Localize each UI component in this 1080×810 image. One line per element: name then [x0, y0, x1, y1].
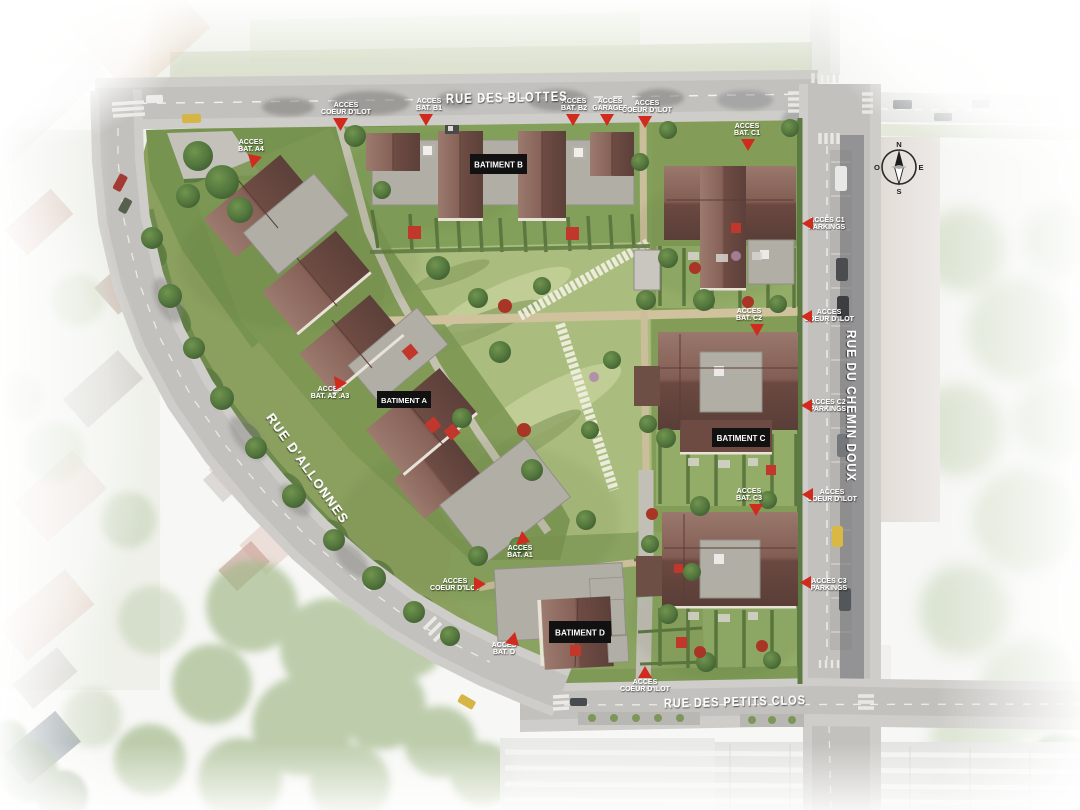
- svg-text:ACCES: ACCES: [817, 309, 842, 316]
- svg-text:ACCES: ACCES: [633, 679, 658, 686]
- svg-text:ACCES: ACCES: [239, 139, 264, 146]
- svg-text:BAT. A2 .A3: BAT. A2 .A3: [311, 393, 350, 400]
- svg-text:PARKINGS: PARKINGS: [811, 585, 848, 592]
- svg-text:O: O: [874, 163, 880, 172]
- svg-text:BATIMENT A: BATIMENT A: [381, 396, 427, 405]
- svg-text:ACCES: ACCES: [508, 545, 533, 552]
- svg-text:BATIMENT D: BATIMENT D: [555, 629, 605, 638]
- svg-text:BAT. A4: BAT. A4: [238, 146, 264, 153]
- svg-text:RUE DES BLOTTES: RUE DES BLOTTES: [446, 88, 568, 107]
- svg-text:ACCES: ACCES: [737, 308, 762, 315]
- svg-text:BATIMENT C: BATIMENT C: [717, 434, 766, 443]
- svg-text:ACCES: ACCES: [635, 100, 660, 107]
- svg-text:PARKINGS: PARKINGS: [810, 406, 847, 413]
- svg-text:BAT. B1: BAT. B1: [416, 105, 442, 112]
- svg-text:COEUR D'ILOT: COEUR D'ILOT: [622, 107, 673, 114]
- svg-text:ACCES: ACCES: [735, 123, 760, 130]
- svg-text:ACCES: ACCES: [443, 578, 468, 585]
- svg-text:COEUR D'ILOT: COEUR D'ILOT: [620, 686, 671, 693]
- svg-text:BAT. B2: BAT. B2: [561, 105, 587, 112]
- svg-text:S: S: [896, 187, 901, 196]
- svg-text:N: N: [896, 140, 901, 149]
- svg-text:COEUR D'ILOT: COEUR D'ILOT: [807, 496, 858, 503]
- svg-text:BAT. C3: BAT. C3: [736, 495, 762, 502]
- svg-text:BATIMENT B: BATIMENT B: [474, 161, 523, 170]
- svg-text:BAT. C2: BAT. C2: [736, 315, 762, 322]
- svg-text:BAT. D: BAT. D: [493, 649, 515, 656]
- svg-text:ACCES: ACCES: [334, 102, 359, 109]
- svg-text:PARKINGS: PARKINGS: [809, 224, 846, 231]
- svg-text:ACCES C3: ACCES C3: [811, 578, 847, 585]
- svg-text:ACCES: ACCES: [737, 488, 762, 495]
- svg-text:BAT. A1: BAT. A1: [507, 552, 533, 559]
- svg-text:ACCES: ACCES: [598, 98, 623, 105]
- svg-text:RUE DU CHEMIN DOUX: RUE DU CHEMIN DOUX: [844, 330, 859, 482]
- svg-text:ACCES: ACCES: [820, 489, 845, 496]
- svg-text:BAT. C1: BAT. C1: [734, 130, 760, 137]
- svg-text:ACCES C1: ACCES C1: [809, 217, 845, 224]
- svg-text:ACCES: ACCES: [417, 98, 442, 105]
- svg-text:COEUR D'ILOT: COEUR D'ILOT: [321, 109, 372, 116]
- svg-text:E: E: [918, 163, 923, 172]
- svg-text:ACCES C2: ACCES C2: [810, 399, 846, 406]
- svg-text:COEUR D'ILOT: COEUR D'ILOT: [430, 585, 481, 592]
